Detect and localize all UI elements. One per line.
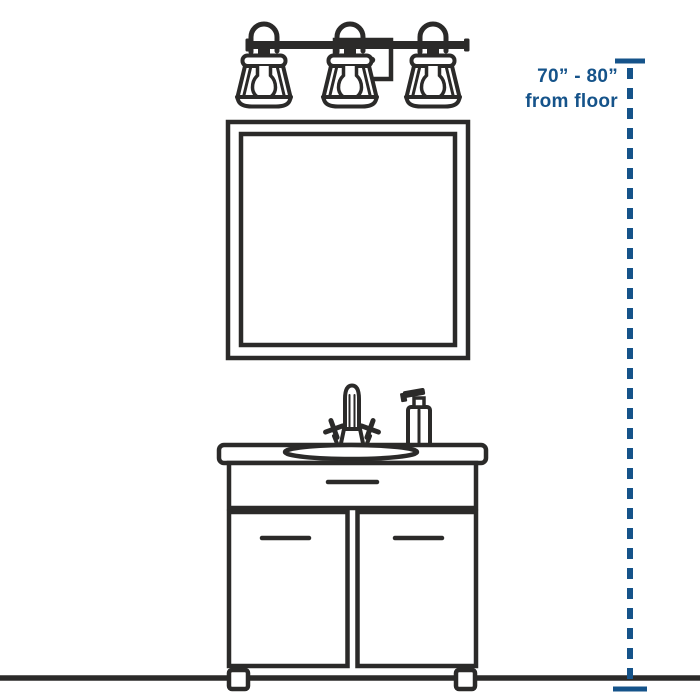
fixture-bar-endcap-right bbox=[464, 39, 470, 52]
mirror-inner-frame bbox=[241, 134, 455, 345]
vanity-light-fixture bbox=[237, 24, 470, 107]
vanity-cabinet bbox=[219, 386, 486, 667]
measurement-annotation: 70” - 80” from floor bbox=[525, 64, 618, 114]
light-shade-left bbox=[237, 24, 291, 107]
light-shade-right bbox=[406, 24, 460, 107]
measurement-range: 70” - 80” bbox=[525, 64, 618, 89]
cabinet-door-left bbox=[229, 512, 348, 666]
wall-mirror bbox=[228, 122, 468, 358]
sink-basin bbox=[285, 445, 417, 459]
soap-bottle-neck bbox=[414, 398, 424, 407]
cabinet-foot-left bbox=[229, 670, 248, 689]
measurement-reference: from floor bbox=[525, 89, 618, 114]
faucet bbox=[322, 386, 381, 451]
vanity-height-diagram: 70” - 80” from floor bbox=[0, 0, 700, 700]
drawer-front bbox=[229, 463, 476, 508]
soap-dispenser bbox=[400, 388, 430, 447]
cabinet-door-right bbox=[358, 512, 477, 666]
light-shade-center bbox=[323, 24, 377, 107]
cabinet-foot-right bbox=[456, 670, 475, 689]
dimension-line bbox=[613, 61, 647, 689]
